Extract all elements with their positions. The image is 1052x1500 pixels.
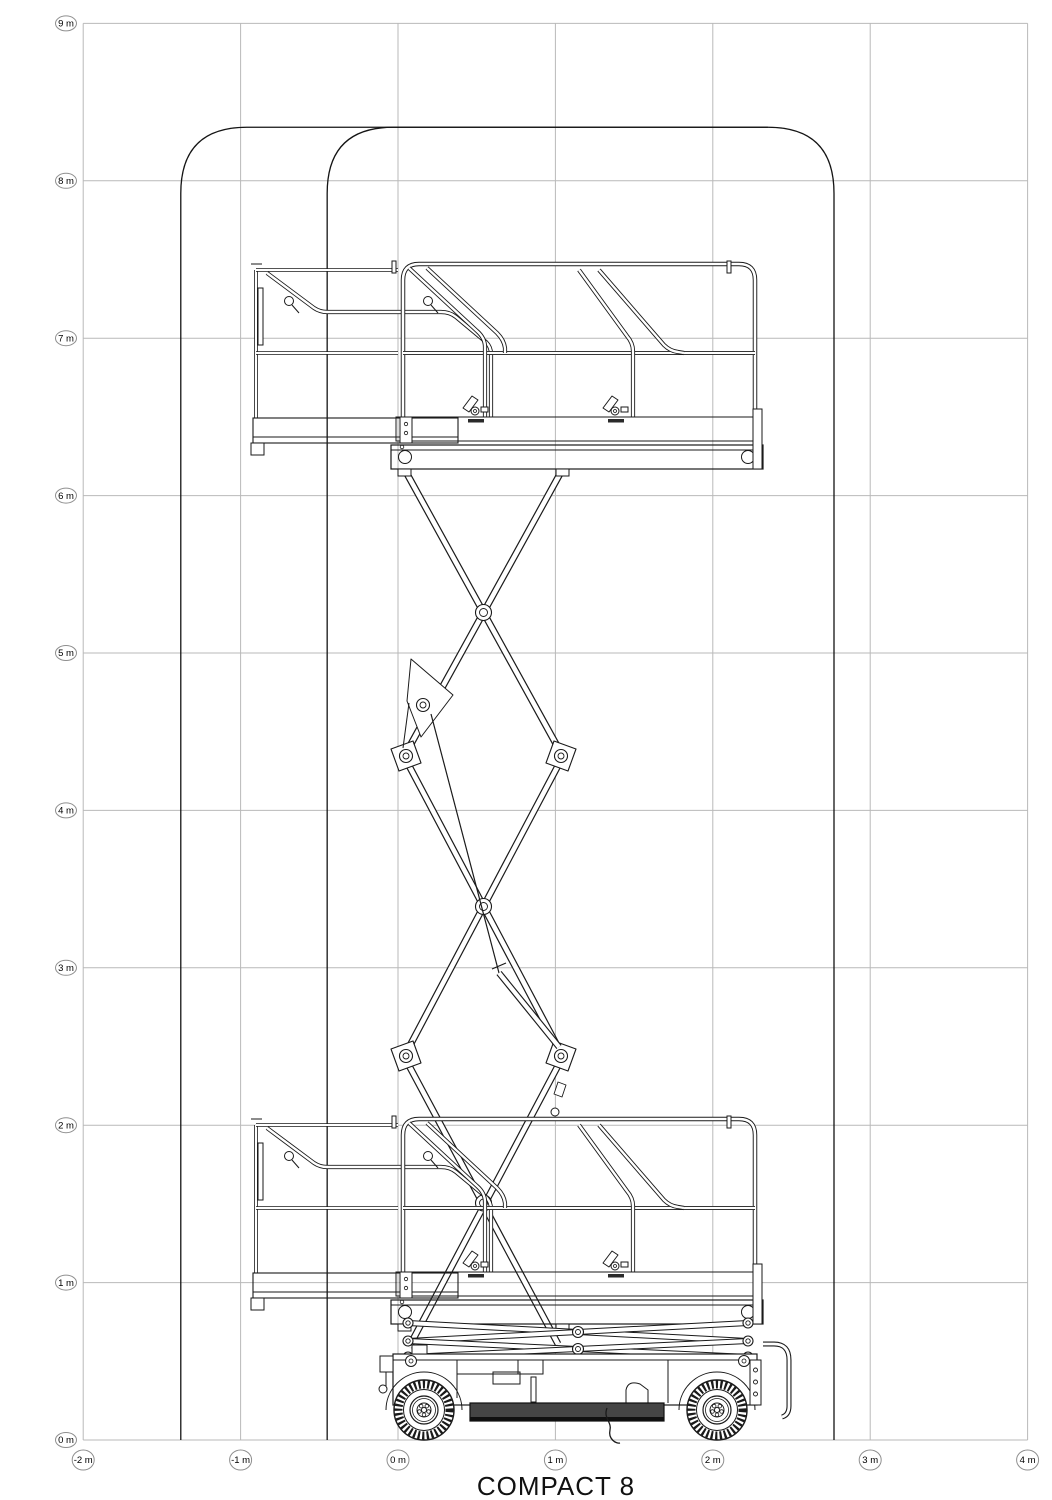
y-axis-labels: 0 m1 m2 m3 m4 m5 m6 m7 m8 m9 m — [56, 16, 77, 1448]
x-axis-tick-label: 2 m — [705, 1455, 721, 1466]
pothole-guard-skirt — [470, 1403, 664, 1421]
wheel-right — [687, 1380, 747, 1440]
diagram-page: 0 m1 m2 m3 m4 m5 m6 m7 m8 m9 m-2 m-1 m0 … — [0, 0, 1052, 1500]
page-title: COMPACT 8 — [30, 1471, 1052, 1500]
x-axis-tick-label: -1 m — [231, 1455, 250, 1466]
y-axis-tick-label: 4 m — [58, 806, 74, 817]
y-axis-tick-label: 5 m — [58, 648, 74, 659]
y-axis-tick-label: 2 m — [58, 1120, 74, 1131]
y-axis-tick-label: 0 m — [58, 1435, 74, 1446]
y-axis-tick-label: 8 m — [58, 176, 74, 187]
y-axis-tick-label: 7 m — [58, 333, 74, 344]
y-axis-tick-label: 6 m — [58, 491, 74, 502]
x-axis-tick-label: 1 m — [547, 1455, 563, 1466]
entry-step-handle — [763, 1344, 789, 1417]
scissor-lift-envelope-drawing: 0 m1 m2 m3 m4 m5 m6 m7 m8 m9 m-2 m-1 m0 … — [0, 0, 1052, 1500]
y-axis-tick-label: 9 m — [58, 19, 74, 30]
x-axis-tick-label: -2 m — [74, 1455, 93, 1466]
meter-grid — [83, 23, 1027, 1440]
y-axis-tick-label: 3 m — [58, 963, 74, 974]
x-axis-tick-label: 4 m — [1020, 1455, 1036, 1466]
x-axis-tick-label: 3 m — [862, 1455, 878, 1466]
x-axis-tick-label: 0 m — [390, 1455, 406, 1466]
y-axis-tick-label: 1 m — [58, 1278, 74, 1289]
lift-cylinder — [403, 659, 566, 1116]
wheel-left — [394, 1380, 454, 1440]
x-axis-labels: -2 m-1 m0 m1 m2 m3 m4 m — [72, 1450, 1038, 1470]
